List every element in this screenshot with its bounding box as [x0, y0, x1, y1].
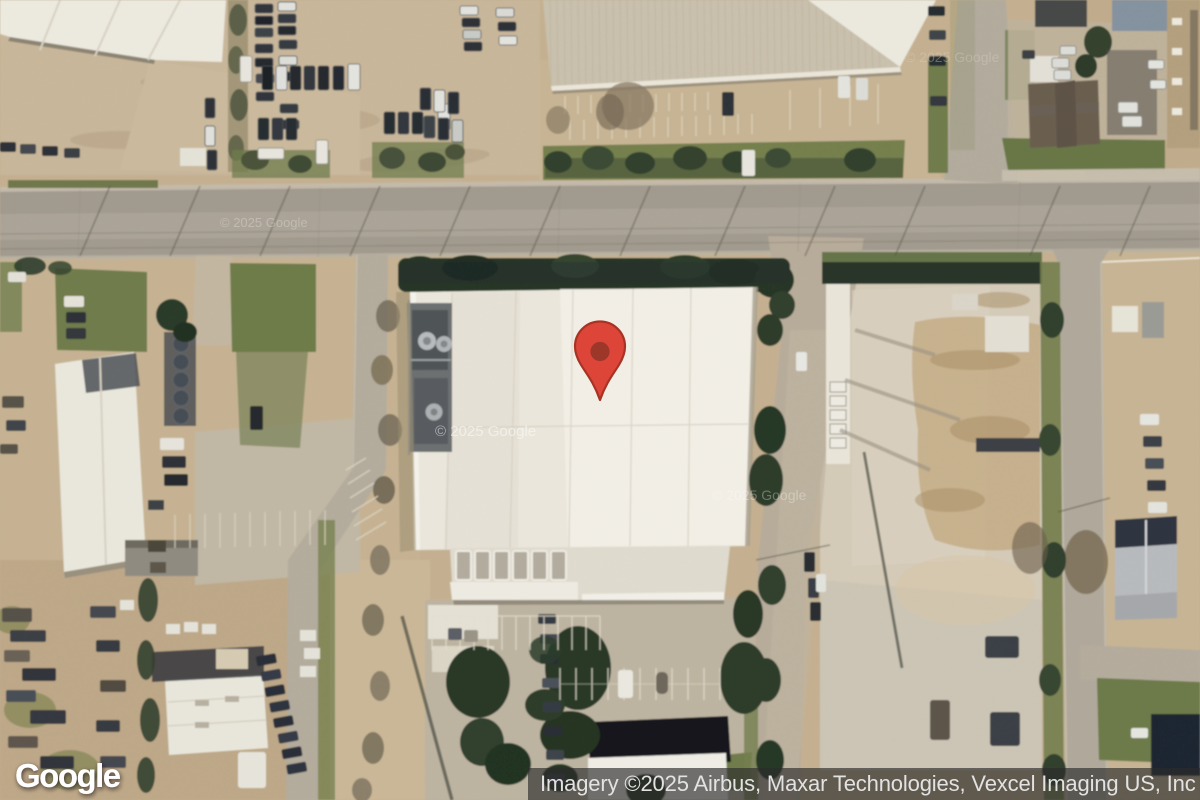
svg-text:© 2025 Google: © 2025 Google [712, 487, 807, 503]
svg-text:© 2025 Google: © 2025 Google [220, 215, 308, 230]
svg-text:© 2025 Google: © 2025 Google [905, 49, 1000, 65]
svg-text:© 2025 Google: © 2025 Google [435, 423, 536, 440]
svg-text:Imagery ©2025 Airbus, Maxar Te: Imagery ©2025 Airbus, Maxar Technologies… [540, 771, 1196, 796]
svg-text:Google: Google [15, 757, 121, 794]
